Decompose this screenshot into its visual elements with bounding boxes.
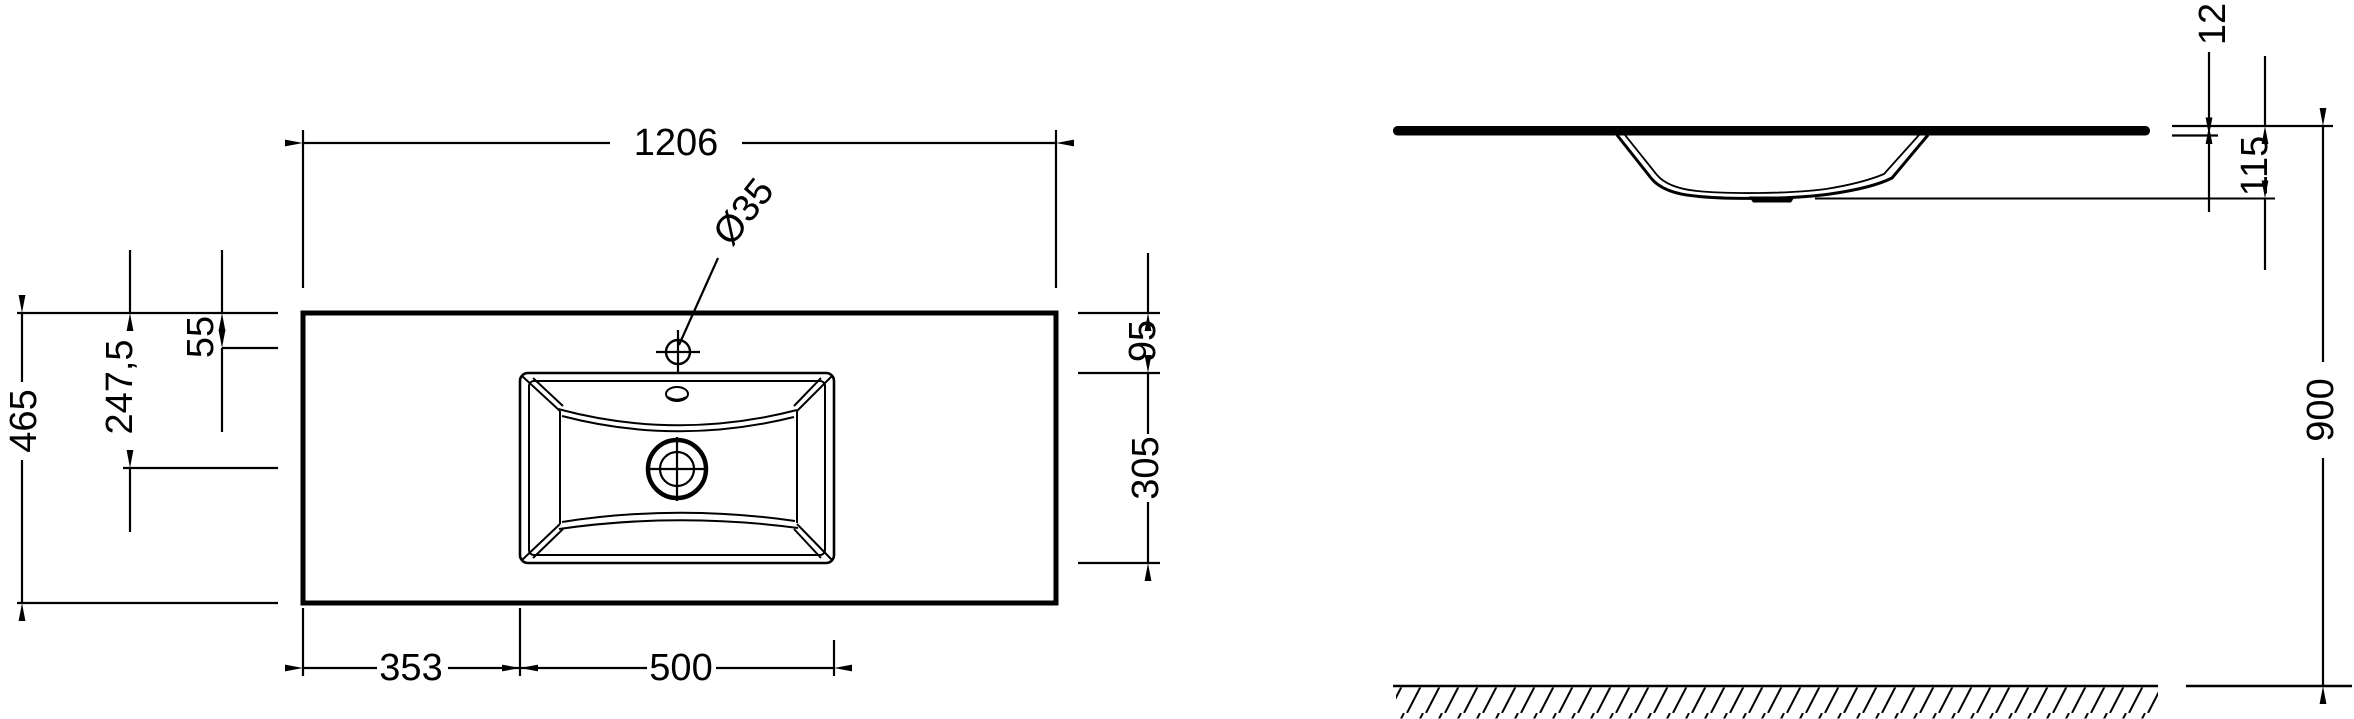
drawing-sheet: 1206 Ø35 465 247,5 55 (0, 0, 2354, 719)
faucet-diameter-label: Ø35 (705, 171, 782, 253)
dim-right-group: 95 305 (1078, 253, 1167, 563)
countertop-slab-profile (1393, 126, 2150, 136)
side-view: 12 115 900 (1393, 3, 2352, 719)
dim-width-label: 1206 (634, 122, 719, 164)
dim-basin-depth-label: 305 (1125, 436, 1167, 499)
dim-basin-top-offset-label: 95 (1122, 320, 1164, 362)
dim-basin-width-label: 500 (649, 647, 712, 689)
bowl-profile-outer (1617, 135, 1928, 198)
dim-faucet-offset-label: 55 (180, 316, 222, 358)
dim-thickness-label: 12 (2192, 3, 2234, 45)
dim-basin-left-offset-label: 353 (379, 647, 442, 689)
dim-mounting-height-label: 900 (2300, 378, 2342, 441)
dim-drain-offset-label: 247,5 (99, 339, 141, 434)
dim-left-group: 465 247,5 55 (3, 250, 278, 603)
dim-width: 1206 (303, 122, 1056, 288)
dim-depth-label: 465 (3, 389, 45, 452)
dim-mounting-height: 900 (2300, 126, 2342, 686)
plan-view: 1206 Ø35 465 247,5 55 (3, 122, 1167, 689)
dim-bowl-depth: 115 (2234, 56, 2276, 270)
floor-hatching (1396, 688, 2158, 719)
technical-drawing: 1206 Ø35 465 247,5 55 (0, 0, 2354, 719)
floor (1393, 686, 2352, 719)
dim-bottom-group: 353 500 (303, 608, 834, 689)
dim-thickness: 12 (2192, 3, 2234, 212)
countertop-outline (303, 313, 1056, 603)
dim-bowl-depth-label: 115 (2234, 136, 2276, 197)
drain (647, 437, 707, 501)
drain-stub (1749, 197, 1795, 203)
